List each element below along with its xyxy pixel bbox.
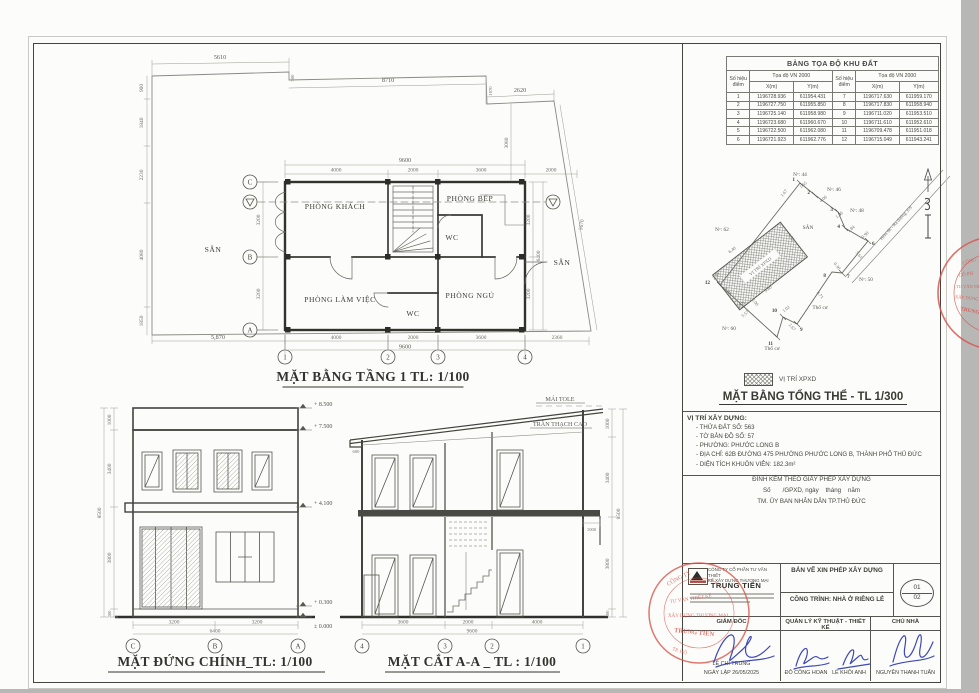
cell: 611962.776 [793, 135, 832, 144]
cell: 4 [727, 118, 750, 127]
sheet-current: 01 [913, 585, 920, 591]
permit-line-3: TM. ỦY BAN NHÂN DÂN TP.THỦ ĐỨC [683, 497, 940, 508]
cell: 1196711.610 [856, 118, 899, 127]
company-address-line [690, 593, 774, 595]
company-cell: CÔNG TY CỔ PHẦN TƯ VẤN THIẾT KẾ XÂY DỰNG… [684, 565, 779, 615]
cell: 1196728.936 [750, 93, 793, 102]
company-name: TRUNG TIẾN [694, 581, 778, 590]
cell: 1196717.830 [856, 101, 899, 110]
cell: 1196711.020 [856, 110, 899, 119]
cell: 1196709.478 [856, 127, 899, 136]
company-address-line [690, 601, 750, 603]
table-row: 51196722.500611962.080111196709.47861195… [727, 127, 939, 136]
role-chu-nha: CHỦ NHÀ [871, 619, 940, 625]
permit-line-1: ĐÍNH KÈM THEO GIẤY PHÉP XÂY DỰNG [683, 475, 940, 486]
permit-line-2: Số /GPXD, ngày tháng năm [683, 486, 940, 497]
cell: 7 [832, 93, 855, 102]
name-le-khoi-anh: LÊ KHÔI ANH [828, 670, 870, 676]
role-giam-doc: GIÁM ĐỐC [684, 619, 779, 625]
cell: 6 [727, 135, 750, 144]
name-do-cong-hoan: ĐỖ CÔNG HOAN [782, 670, 830, 676]
cell: 611955.850 [793, 101, 832, 110]
location-item: - ĐỊA CHỈ: 62B ĐƯỜNG 475 PHƯỜNG PHƯỚC LO… [696, 450, 940, 459]
cell: 5 [727, 127, 750, 136]
cell: 2 [727, 101, 750, 110]
table-row: 31196725.140611958.98091196711.020611953… [727, 110, 939, 119]
name-le-chi-trung: LÊ CHÍ TRUNG [684, 661, 779, 667]
cell: 3 [727, 110, 750, 119]
sheet-number: 01 02 [900, 579, 934, 607]
coordinate-table-title: BẢNG TỌA ĐỘ KHU ĐẤT [727, 57, 939, 71]
role-quan-ly: QUẢN LÝ KỸ THUẬT - THIẾT KẾ [781, 619, 870, 631]
title-block: CÔNG TY CỔ PHẦN TƯ VẤN THIẾT KẾ XÂY DỰNG… [682, 563, 940, 681]
cell: 1196723.680 [750, 118, 793, 127]
cell: 10 [832, 118, 855, 127]
cell: 1196721.923 [750, 135, 793, 144]
location-heading: VỊ TRÍ XÂY DỰNG: [687, 415, 940, 422]
col-x2: X(m) [856, 82, 899, 93]
col-y2: Y(m) [899, 82, 938, 93]
location-item: - PHƯỜNG: PHƯỚC LONG B [696, 441, 940, 450]
location-item: - DIỆN TÍCH KHUÔN VIÊN: 182.3m² [696, 460, 940, 469]
cell: 1 [727, 93, 750, 102]
company-line-1: CÔNG TY CỔ PHẦN TƯ VẤN THIẾT [708, 567, 780, 578]
table-row: 41196723.680611960.670101196711.61061195… [727, 118, 939, 127]
cell: 1196722.500 [750, 127, 793, 136]
location-item: - TỜ BẢN ĐỒ SỐ: 57 [696, 432, 940, 441]
cell: 1196715.049 [856, 135, 899, 144]
scanned-construction-permit-drawing: { "coord": { "title": "BẢNG TỌA ĐỘ KHU Đ… [0, 0, 979, 693]
cell: 8 [832, 101, 855, 110]
cell: 611952.610 [899, 118, 938, 127]
project-name: CÔNG TRÌNH: NHÀ Ở RIÊNG LẺ [780, 596, 894, 603]
col-group-2: Tọa độ VN 2000 [856, 71, 939, 82]
cell: 9 [832, 110, 855, 119]
col-point-2: Số hiệu điểm [832, 71, 855, 93]
cell: 611962.080 [793, 127, 832, 136]
cell: 11 [832, 127, 855, 136]
table-row: 11196728.936611954.43171196717.630611959… [727, 93, 939, 102]
cell: 12 [832, 135, 855, 144]
name-nguyen-thanh-tuan: NGUYỄN THANH TUẤN [871, 670, 940, 676]
hatch-legend-swatch [744, 373, 773, 386]
cell: 611954.431 [793, 93, 832, 102]
date-created: NGÀY LẬP 26/05/2025 [684, 670, 779, 676]
col-y1: Y(m) [793, 82, 832, 93]
col-point: Số hiệu điểm [727, 71, 750, 93]
company-address-line [690, 597, 774, 599]
cell: 611958.940 [899, 101, 938, 110]
hatch-legend-label: VỊ TRÍ XPXD [779, 376, 816, 383]
cell: 1196725.140 [750, 110, 793, 119]
table-row: 21196727.750611955.85081196717.830611958… [727, 101, 939, 110]
cell: 611958.980 [793, 110, 832, 119]
col-x1: X(m) [750, 82, 793, 93]
construction-location-box: VỊ TRÍ XÂY DỰNG: - THỬA ĐẤT SỐ: 563 - TỜ… [683, 411, 940, 476]
site-plan-legend: VỊ TRÍ XPXD [744, 373, 944, 386]
col-group-1: Tọa độ VN 2000 [750, 71, 833, 82]
table-row: 61196721.923611962.776121196715.04961194… [727, 135, 939, 144]
site-plan-title: MẶT BẰNG TỔNG THỂ - TL 1/300 [688, 387, 938, 405]
location-item: - THỬA ĐẤT SỐ: 563 [696, 423, 940, 432]
cell: 611960.670 [793, 118, 832, 127]
permit-attachment-box: ĐÍNH KÈM THEO GIẤY PHÉP XÂY DỰNG Số /GPX… [683, 475, 940, 508]
site-plan-title-text: MẶT BẰNG TỔNG THỂ - TL 1/300 [719, 391, 908, 405]
cell: 1196727.750 [750, 101, 793, 110]
cell: 611959.170 [899, 93, 938, 102]
cell: 611951.018 [899, 127, 938, 136]
cell: 611943.241 [899, 135, 938, 144]
cell: 611953.510 [899, 110, 938, 119]
sheet-total: 02 [913, 595, 920, 601]
cell: 1196717.630 [856, 93, 899, 102]
coordinate-table: BẢNG TỌA ĐỘ KHU ĐẤT Số hiệu điểm Tọa độ … [726, 56, 939, 145]
drawing-type: BẢN VẼ XIN PHÉP XÂY DỰNG [782, 567, 892, 574]
